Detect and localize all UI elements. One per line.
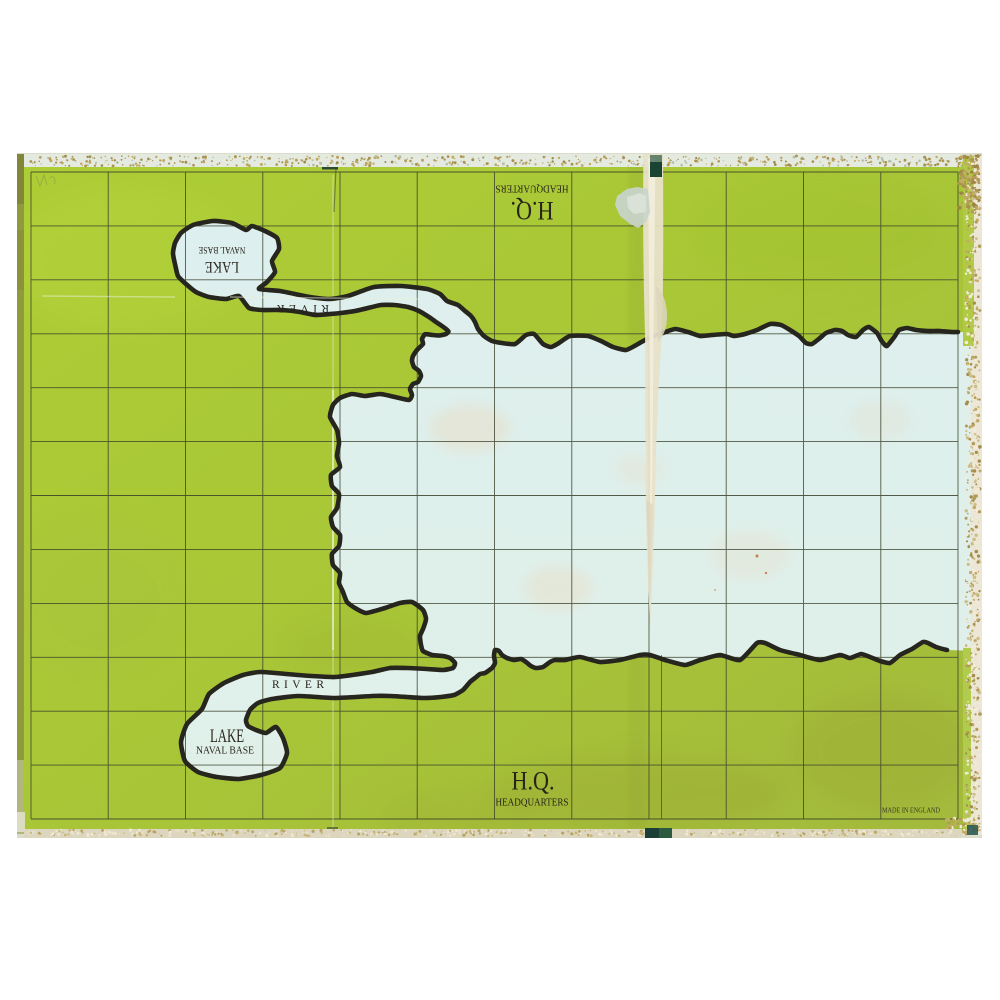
svg-text:HEADQUARTERS: HEADQUARTERS [496, 798, 569, 809]
svg-text:H.Q.: H.Q. [511, 196, 554, 225]
svg-text:NAVAL BASE: NAVAL BASE [196, 746, 254, 757]
svg-text:HEADQUARTERS: HEADQUARTERS [495, 183, 568, 194]
svg-text:LAKE: LAKE [205, 258, 239, 275]
svg-text:NAVAL BASE: NAVAL BASE [198, 245, 245, 255]
svg-text:MADE IN ENGLAND: MADE IN ENGLAND [882, 808, 940, 815]
svg-text:H.Q.: H.Q. [512, 767, 555, 796]
svg-text:LAKE: LAKE [210, 727, 244, 747]
